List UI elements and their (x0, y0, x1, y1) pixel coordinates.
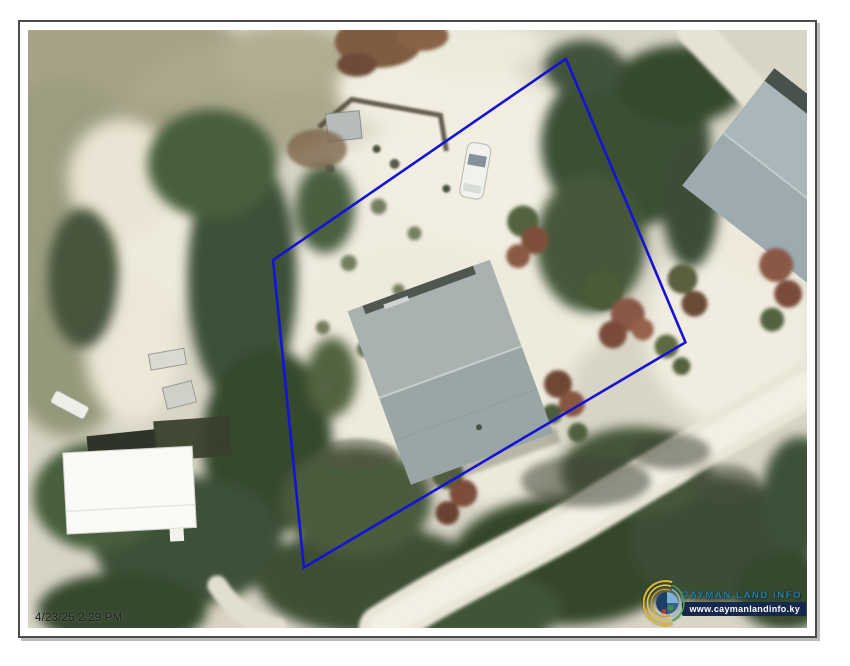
map-export-page: 4/23/25 2:29 PM CAYMAN LAND INFO ww (0, 0, 850, 666)
aerial-imagery (28, 30, 807, 628)
print-frame: 4/23/25 2:29 PM CAYMAN LAND INFO ww (18, 20, 817, 638)
logo-lockup: CAYMAN LAND INFO www.caymanlandinfo.ky (643, 580, 807, 626)
logo-brand-text: CAYMAN LAND INFO (682, 590, 803, 601)
aerial-photo: 4/23/25 2:29 PM CAYMAN LAND INFO ww (28, 30, 807, 628)
map-timestamp: 4/23/25 2:29 PM (35, 612, 122, 624)
cayman-land-info-logo-icon (643, 580, 689, 626)
logo-url-badge: www.caymanlandinfo.ky (682, 602, 807, 616)
